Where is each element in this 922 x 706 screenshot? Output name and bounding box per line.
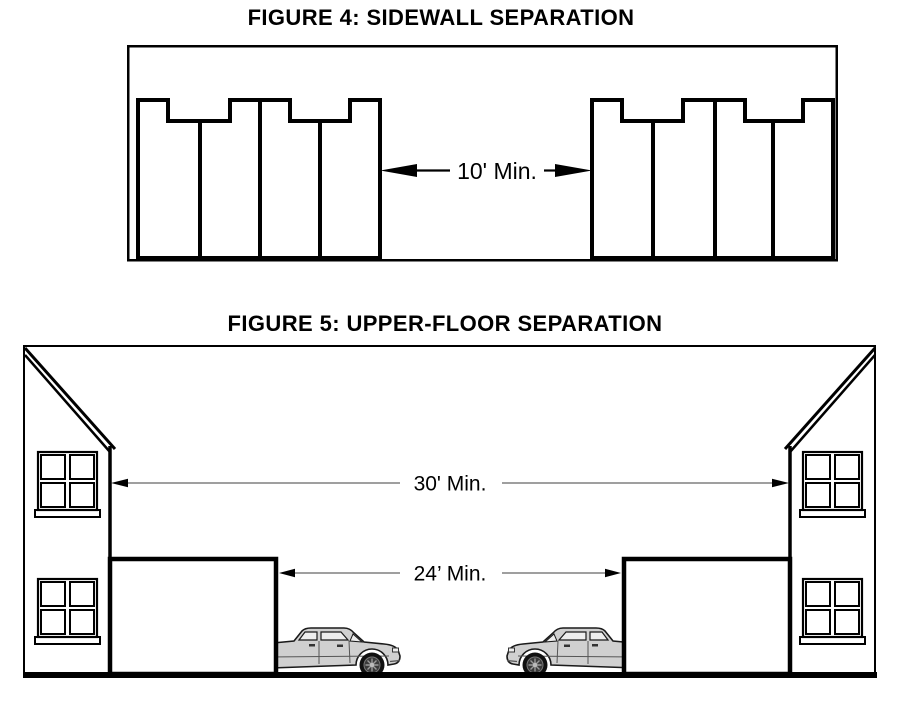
figure5-diagram: 30' Min. 24’ Min.: [23, 345, 877, 678]
right-building-plan: [592, 100, 833, 258]
window: [35, 452, 100, 517]
document-page: FIGURE 4: SIDEWALL SEPARATION 10' Min. F…: [0, 0, 922, 706]
right-garage: [624, 559, 790, 674]
right-building-outline: [592, 100, 833, 258]
window: [800, 452, 865, 517]
window: [800, 579, 865, 644]
window: [35, 579, 100, 644]
figure4-diagram: 10' Min.: [127, 45, 838, 262]
garage-separation-dimension-label: 24’ Min.: [414, 563, 487, 586]
left-building-plan: [138, 100, 380, 258]
figure5-title: FIGURE 5: UPPER-FLOOR SEPARATION: [0, 311, 890, 337]
sidewall-dimension-label: 10' Min.: [457, 158, 537, 184]
upper-floor-dimension-label: 30' Min.: [414, 473, 487, 496]
figure4-title: FIGURE 4: SIDEWALL SEPARATION: [0, 5, 882, 31]
left-garage: [110, 559, 276, 674]
